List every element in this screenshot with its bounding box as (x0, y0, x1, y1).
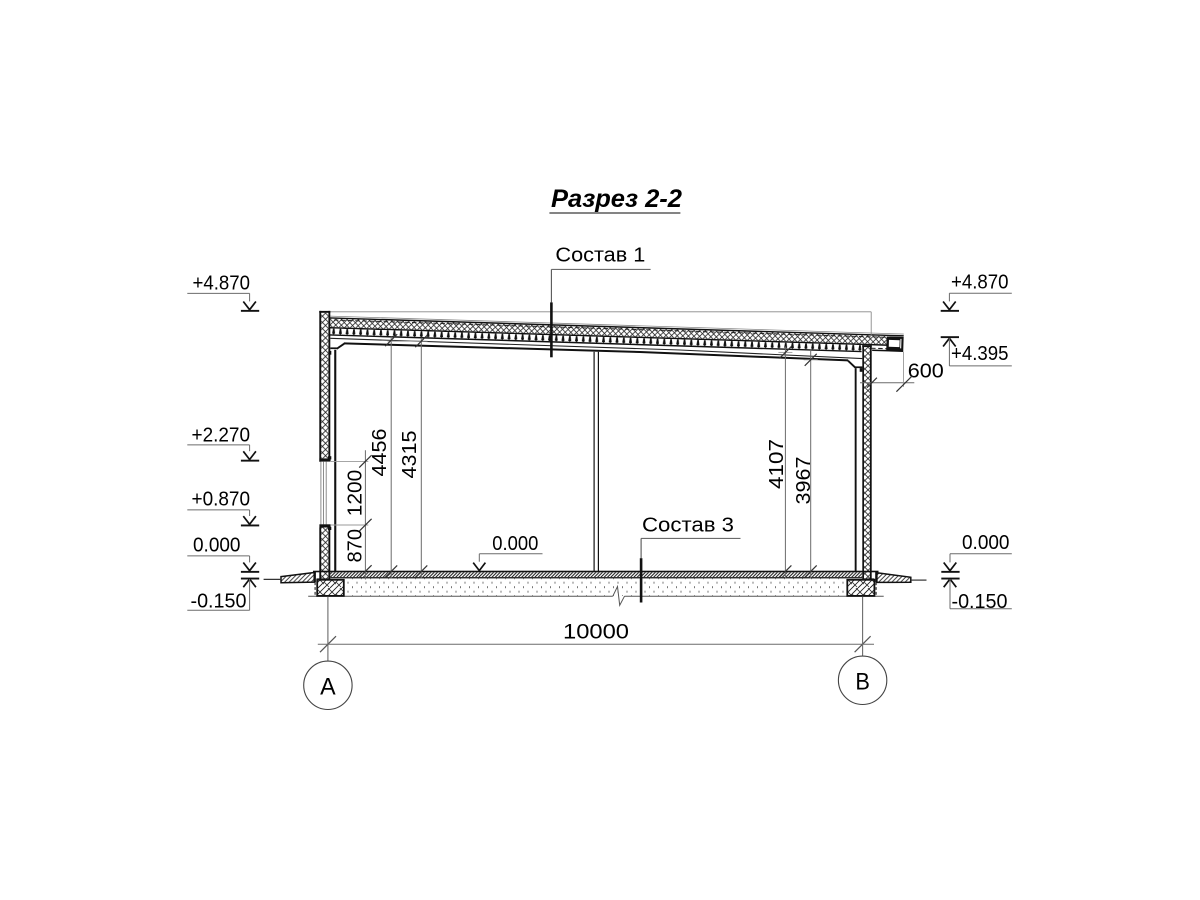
svg-text:+4.395: +4.395 (951, 343, 1009, 365)
svg-text:+4.870: +4.870 (193, 272, 251, 294)
svg-text:-0.150: -0.150 (191, 591, 247, 613)
svg-text:4456: 4456 (369, 429, 391, 477)
svg-text:600: 600 (908, 361, 944, 383)
svg-text:1200: 1200 (345, 470, 367, 517)
svg-text:10000: 10000 (563, 620, 629, 643)
svg-text:Состав 1: Состав 1 (555, 244, 645, 266)
svg-text:В: В (855, 669, 870, 696)
svg-text:0.000: 0.000 (193, 535, 241, 557)
svg-text:0.000: 0.000 (492, 533, 538, 555)
svg-text:Разрез 2-2: Разрез 2-2 (551, 185, 682, 213)
svg-text:0.000: 0.000 (962, 532, 1010, 554)
svg-text:4107: 4107 (766, 439, 788, 489)
svg-text:-0.150: -0.150 (952, 591, 1008, 613)
svg-text:+0.870: +0.870 (192, 489, 251, 511)
svg-text:+2.270: +2.270 (192, 425, 251, 447)
svg-text:870: 870 (345, 529, 367, 563)
svg-text:3967: 3967 (793, 457, 815, 505)
svg-text:А: А (320, 674, 336, 701)
svg-text:4315: 4315 (399, 431, 421, 479)
svg-text:Состав 3: Состав 3 (642, 515, 734, 537)
svg-text:+4.870: +4.870 (951, 271, 1009, 293)
